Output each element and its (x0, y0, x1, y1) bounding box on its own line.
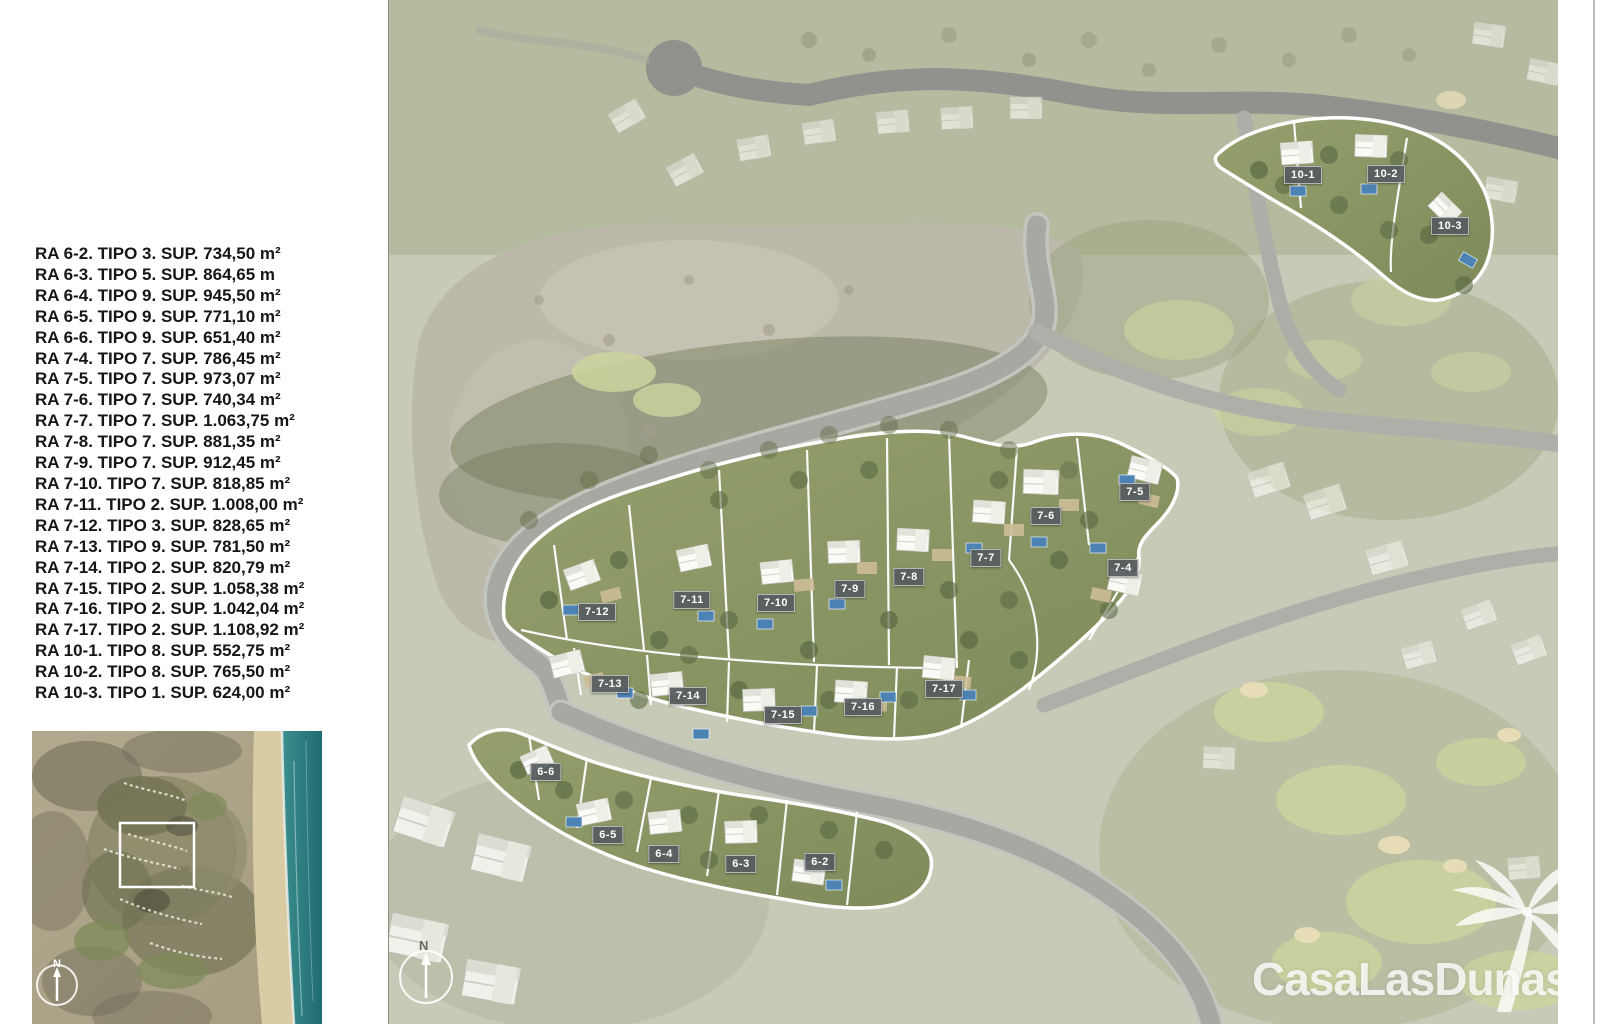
plot-label-6-3: 6-3 (725, 855, 756, 873)
plot-label-6-4: 6-4 (648, 845, 679, 863)
site-plan-drawing: N (389, 0, 1559, 1024)
legend-item: RA 6-4. TIPO 9. SUP. 945,50 m² (35, 286, 365, 307)
legend-item: RA 6-5. TIPO 9. SUP. 771,10 m² (35, 307, 365, 328)
legend-item: RA 7-7. TIPO 7. SUP. 1.063,75 m² (35, 411, 365, 432)
plot-label-7-4: 7-4 (1107, 559, 1138, 577)
legend-item: RA 10-1. TIPO 8. SUP. 552,75 m² (35, 641, 365, 662)
legend-item: RA 6-6. TIPO 9. SUP. 651,40 m² (35, 328, 365, 349)
plot-label-7-12: 7-12 (578, 603, 616, 621)
plot-label-6-6: 6-6 (530, 763, 561, 781)
plot-label-6-5: 6-5 (592, 826, 623, 844)
legend-item: RA 6-3. TIPO 5. SUP. 864,65 m (35, 265, 365, 286)
left-panel: RA 6-2. TIPO 3. SUP. 734,50 m² RA 6-3. T… (0, 0, 388, 1024)
inset-aerial: N (32, 731, 322, 1024)
plot-label-7-13: 7-13 (591, 675, 629, 693)
plot-label-7-8: 7-8 (893, 568, 924, 586)
legend-item: RA 7-11. TIPO 2. SUP. 1.008,00 m² (35, 495, 365, 516)
legend-item: RA 7-6. TIPO 7. SUP. 740,34 m² (35, 390, 365, 411)
legend-item: RA 7-9. TIPO 7. SUP. 912,45 m² (35, 453, 365, 474)
legend-item: RA 7-10. TIPO 7. SUP. 818,85 m² (35, 474, 365, 495)
masterplan-page: RA 6-2. TIPO 3. SUP. 734,50 m² RA 6-3. T… (0, 0, 1600, 1024)
plot-label-7-9: 7-9 (834, 580, 865, 598)
legend-item: RA 7-12. TIPO 3. SUP. 828,65 m² (35, 516, 365, 537)
plot-label-7-10: 7-10 (757, 594, 795, 612)
legend-item: RA 7-13. TIPO 9. SUP. 781,50 m² (35, 537, 365, 558)
plot-label-10-2: 10-2 (1367, 165, 1405, 183)
legend-item: RA 10-2. TIPO 8. SUP. 765,50 m² (35, 662, 365, 683)
location-inset-map: N (32, 731, 322, 1024)
right-margin (1558, 0, 1600, 1024)
plot-legend: RA 6-2. TIPO 3. SUP. 734,50 m² RA 6-3. T… (35, 244, 365, 704)
plot-label-7-7: 7-7 (970, 549, 1001, 567)
plot-label-7-15: 7-15 (764, 706, 802, 724)
plot-label-6-2: 6-2 (804, 853, 835, 871)
site-plan-map: N 10-1 10-2 10-3 7-5 7-6 7-4 7-7 7-8 7-9… (388, 0, 1559, 1024)
plot-label-7-16: 7-16 (844, 698, 882, 716)
plot-label-7-17: 7-17 (925, 680, 963, 698)
legend-item: RA 7-15. TIPO 2. SUP. 1.058,38 m² (35, 579, 365, 600)
plot-label-10-3: 10-3 (1431, 217, 1469, 235)
legend-item: RA 7-16. TIPO 2. SUP. 1.042,04 m² (35, 599, 365, 620)
plot-label-10-1: 10-1 (1284, 166, 1322, 184)
legend-item: RA 7-17. TIPO 2. SUP. 1.108,92 m² (35, 620, 365, 641)
plot-label-7-6: 7-6 (1030, 507, 1061, 525)
plot-label-7-14: 7-14 (669, 687, 707, 705)
legend-item: RA 10-3. TIPO 1. SUP. 624,00 m² (35, 683, 365, 704)
legend-item: RA 7-8. TIPO 7. SUP. 881,35 m² (35, 432, 365, 453)
page-edge-rule (1593, 0, 1595, 1024)
legend-item: RA 7-14. TIPO 2. SUP. 820,79 m² (35, 558, 365, 579)
north-label: N (419, 938, 428, 953)
legend-item: RA 6-2. TIPO 3. SUP. 734,50 m² (35, 244, 365, 265)
plot-label-7-11: 7-11 (673, 591, 710, 609)
logo-text: CasaLasDunas (1252, 952, 1559, 1006)
inset-north-label: N (53, 958, 61, 970)
legend-item: RA 7-5. TIPO 7. SUP. 973,07 m² (35, 369, 365, 390)
legend-item: RA 7-4. TIPO 7. SUP. 786,45 m² (35, 349, 365, 370)
plot-label-7-5: 7-5 (1119, 483, 1150, 501)
